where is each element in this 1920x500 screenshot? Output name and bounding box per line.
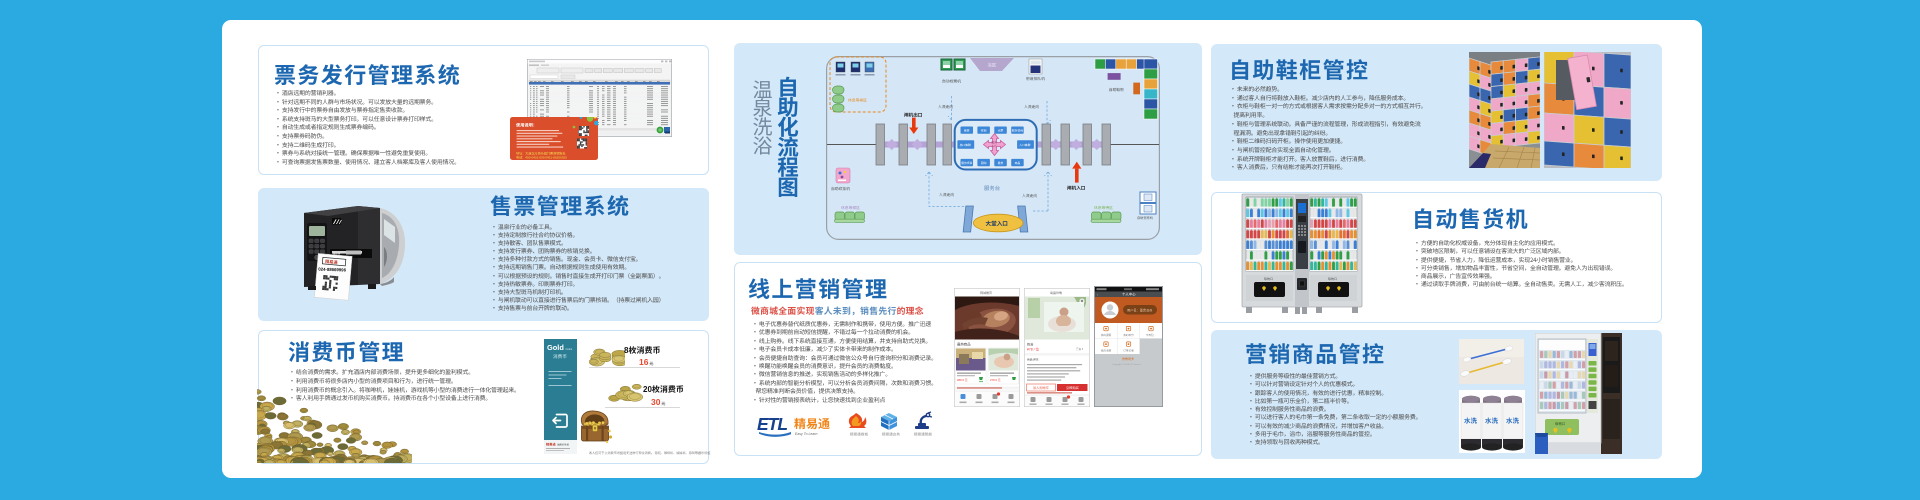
svg-text:无票: 无票 [998,128,1004,132]
svg-text:Gold: Gold [547,343,564,352]
svg-text:024-88669996: 024-88669996 [318,267,346,273]
svg-text:‹: ‹ [1097,293,1098,297]
svg-text:水洗: 水洗 [1506,415,1520,425]
svg-text:我的资料: 我的资料 [1101,333,1112,337]
svg-text:订单记录: 订单记录 [1123,348,1134,352]
svg-text:人流走向: 人流走向 [1022,193,1037,199]
svg-text:大厅: 大厅 [991,144,997,148]
svg-text:已售 8: 已售 8 [1076,347,1084,351]
svg-text:卡券包: 卡券包 [1146,333,1154,337]
svg-text:水洗: 水洗 [1464,415,1478,425]
svg-text:¥78 / 位: ¥78 / 位 [1027,347,1039,352]
svg-text:精易通会务: 精易通会务 [882,432,900,438]
svg-text:精易通智能: 精易通智能 [914,432,932,438]
svg-text:网城首页: 网城首页 [980,291,992,295]
svg-text:休息等候区: 休息等候区 [841,205,860,211]
svg-text:取物口: 取物口 [1555,421,1565,426]
svg-text:出口集群: 出口集群 [960,143,971,147]
svg-text:入口集群: 入口集群 [1019,143,1030,147]
svg-text:查看更多: 查看更多 [1122,357,1134,361]
svg-text:我的消费: 我的消费 [1101,348,1112,352]
svg-text:自助纹挂机: 自助纹挂机 [831,186,850,192]
svg-text:ETL: ETL [757,414,787,434]
svg-text:团购: 团购 [981,161,987,165]
svg-text:精易通: 精易通 [546,442,556,447]
svg-text:用户名：尊贵会员: 用户名：尊贵会员 [1127,308,1153,313]
svg-text:自助查房机: 自助查房机 [1137,215,1154,220]
svg-text:浴区: 浴区 [988,62,997,68]
svg-text:商品详情: 商品详情 [1050,291,1062,295]
svg-text:消费币: 消费币 [553,354,567,360]
svg-text:休息等候区: 休息等候区 [848,97,867,103]
svg-text:人流走向: 人流走向 [1024,104,1039,110]
svg-text:人流走向: 人流走向 [938,104,953,110]
svg-text:奶浴: 奶浴 [1027,342,1034,347]
svg-text:立即购买: 立即购买 [1066,385,1079,390]
svg-text:¥78.0 元: ¥78.0 元 [990,378,1001,382]
svg-text:消费币系统: 消费币系统 [557,443,570,447]
svg-text:我的积分: 我的积分 [1123,333,1134,337]
svg-text:自动检票机: 自动检票机 [942,78,961,84]
svg-text:Copyright © 2018 JYT.com.cn: Copyright © 2018 JYT.com.cn [1112,363,1142,366]
svg-text:电话：400-0431-099 0431-85555555: 电话：400-0431-099 0431-85555555 [516,154,567,159]
svg-text:结算: 结算 [964,128,970,132]
svg-text:核销: 核销 [981,128,987,132]
svg-text:闸机出口: 闸机出口 [904,112,923,118]
svg-text:加入购物车: 加入购物车 [1033,385,1049,390]
svg-text:精易通: 精易通 [325,259,339,266]
svg-text:Coins: Coins [566,347,573,351]
svg-text:服务台: 服务台 [984,184,1000,192]
svg-text:密道排队机: 密道排队机 [1026,76,1045,82]
svg-text:取物口: 取物口 [1264,277,1273,281]
svg-text:服务项目: 服务项目 [961,161,972,165]
svg-text:¥88.0 元: ¥88.0 元 [957,378,968,382]
svg-text:最热商品: 最热商品 [957,342,971,347]
svg-text:取物口: 取物口 [1328,277,1337,281]
svg-text:精易通商城: 精易通商城 [850,432,868,438]
svg-text:商品: 商品 [1015,161,1021,165]
svg-text:人流走向: 人流走向 [939,192,954,198]
svg-text:教发: 教发 [998,161,1004,165]
svg-text:自助鞋柜: 自助鞋柜 [1109,87,1124,93]
svg-text:商品详情：: 商品详情： [1027,358,1041,362]
svg-text:闸机入口: 闸机入口 [1067,185,1086,191]
svg-text:Easy To Learn: Easy To Learn [795,432,817,436]
svg-text:休息等待区: 休息等待区 [1094,205,1113,211]
svg-text:精易通: 精易通 [794,415,830,432]
svg-text:使用说明：: 使用说明： [516,123,537,129]
svg-text:水洗: 水洗 [1485,415,1499,425]
svg-text:个人中心: 个人中心 [1122,292,1136,297]
svg-text:服务咨询: 服务咨询 [1012,128,1023,132]
svg-text:大堂入口: 大堂入口 [986,219,1009,227]
